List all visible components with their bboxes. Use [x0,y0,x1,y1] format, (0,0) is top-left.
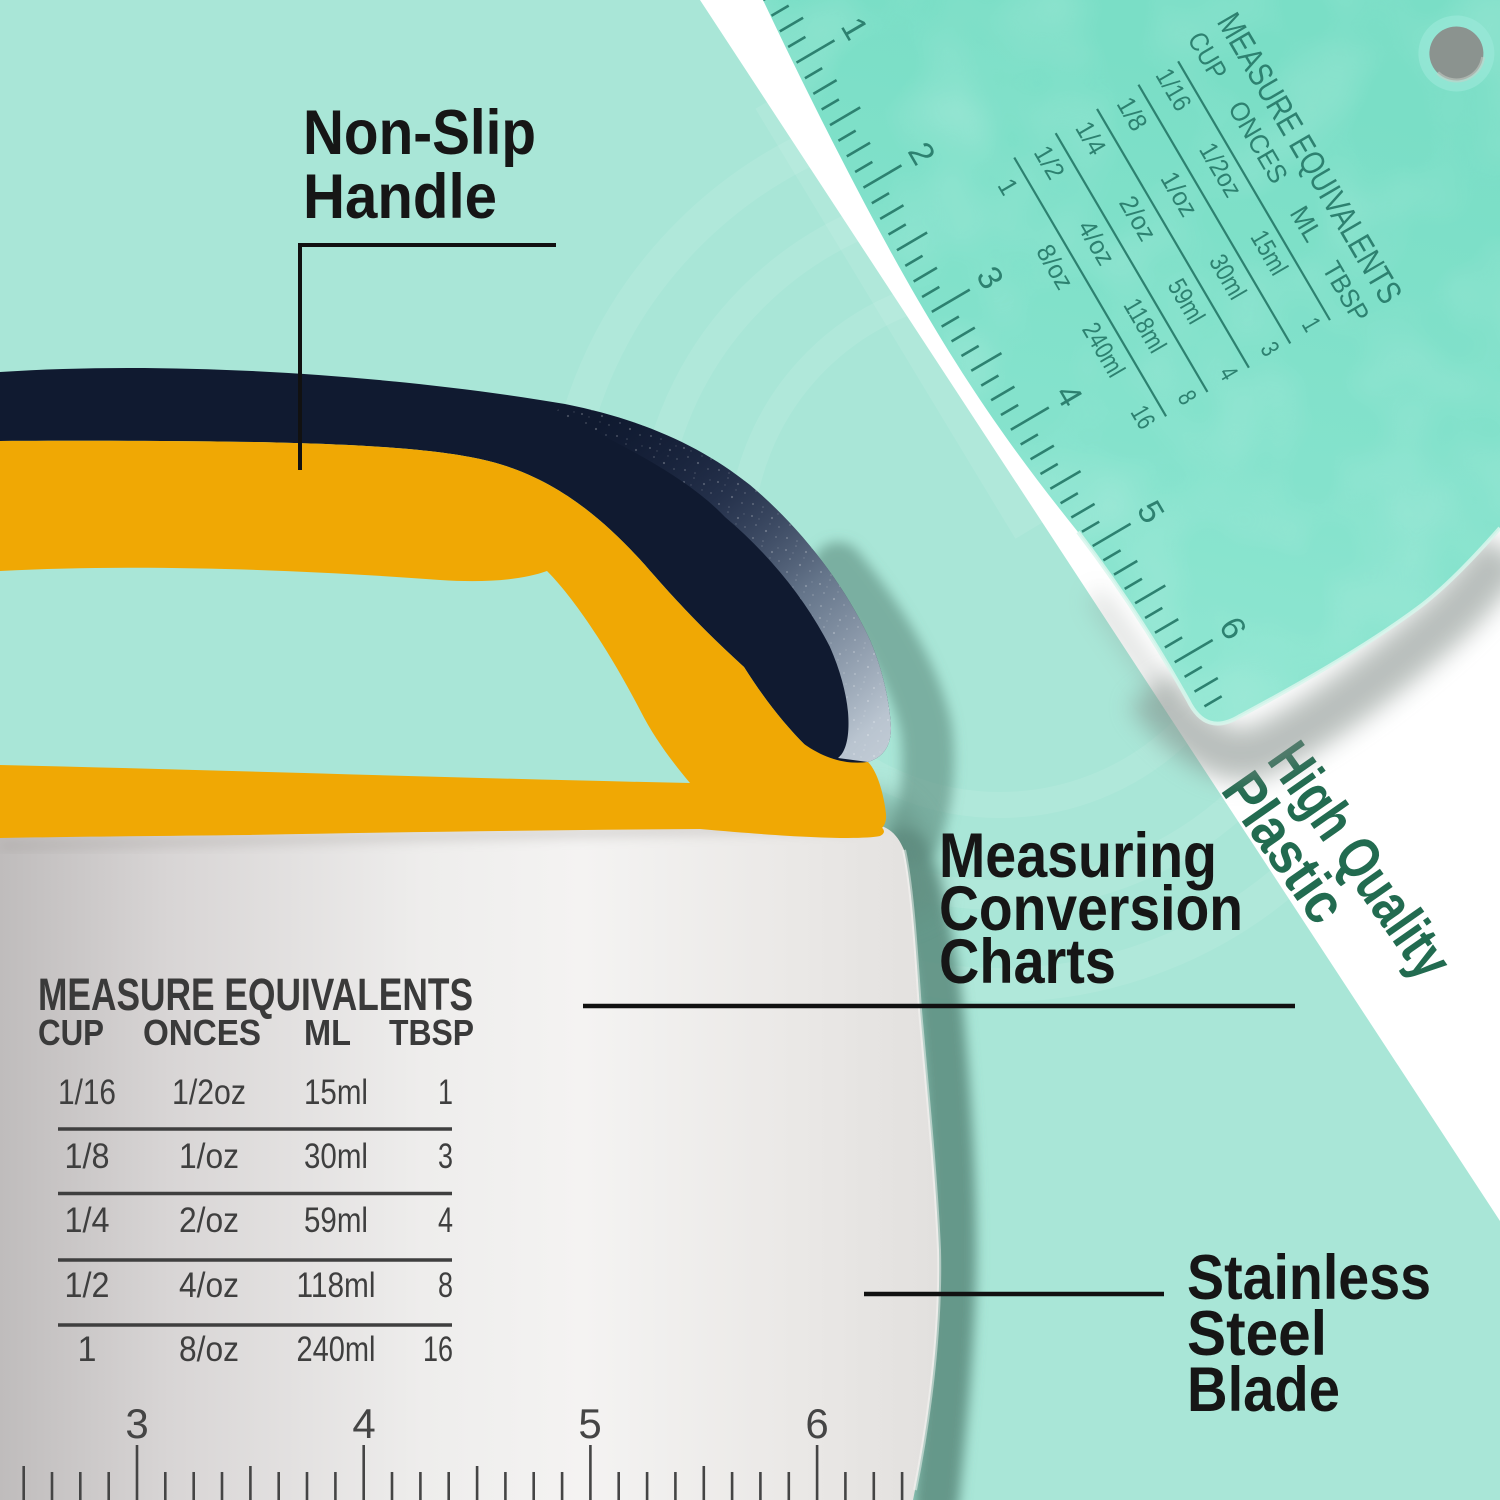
svg-text:16: 16 [423,1330,453,1369]
svg-text:Charts: Charts [939,927,1116,997]
svg-text:1: 1 [438,1073,453,1112]
svg-text:1/16: 1/16 [58,1073,116,1112]
svg-text:5: 5 [578,1400,601,1447]
svg-text:1: 1 [78,1330,97,1369]
svg-text:4/oz: 4/oz [179,1266,239,1305]
svg-text:1/oz: 1/oz [179,1137,239,1176]
svg-text:6: 6 [805,1400,828,1447]
svg-text:1/4: 1/4 [65,1201,110,1240]
svg-text:8: 8 [438,1266,453,1305]
svg-text:ONCES: ONCES [143,1012,261,1053]
svg-text:Non-Slip: Non-Slip [303,98,536,168]
svg-text:1/2oz: 1/2oz [172,1073,246,1112]
svg-text:118ml: 118ml [297,1266,376,1305]
svg-text:2/oz: 2/oz [179,1201,239,1240]
svg-text:1/8: 1/8 [65,1137,110,1176]
svg-text:3: 3 [438,1137,453,1176]
svg-text:59ml: 59ml [304,1201,368,1240]
svg-text:3: 3 [125,1400,148,1447]
svg-text:1/2: 1/2 [65,1266,110,1305]
svg-text:15ml: 15ml [304,1073,368,1112]
svg-text:4: 4 [352,1400,375,1447]
svg-text:8/oz: 8/oz [179,1330,239,1369]
svg-text:TBSP: TBSP [389,1012,474,1053]
svg-text:CUP: CUP [38,1012,104,1053]
svg-text:30ml: 30ml [304,1137,368,1176]
svg-text:240ml: 240ml [297,1330,376,1369]
svg-text:ML: ML [304,1012,351,1053]
svg-text:Handle: Handle [303,162,497,232]
svg-text:4: 4 [438,1201,453,1240]
svg-text:Blade: Blade [1187,1355,1340,1425]
